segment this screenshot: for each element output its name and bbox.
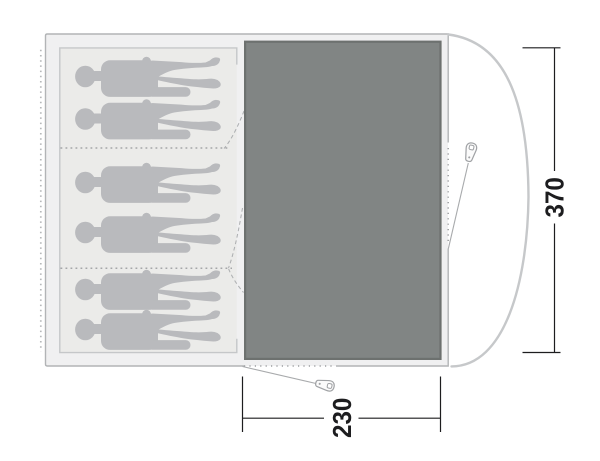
- svg-text:370: 370: [541, 177, 570, 217]
- svg-text:230: 230: [328, 398, 357, 438]
